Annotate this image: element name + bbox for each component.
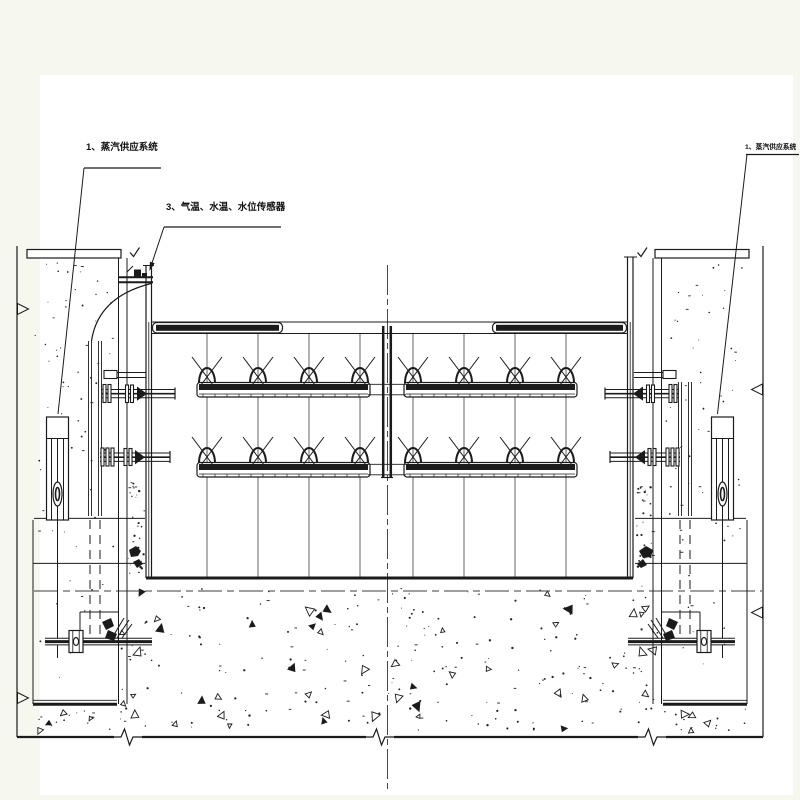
callout-sensors: 3、气温、水温、水位传感器 (166, 201, 286, 213)
valve-indicator (718, 482, 727, 506)
callout-right-steam-system: 1、蒸汽供应系统 (745, 142, 797, 151)
pipe-clamp (104, 371, 117, 379)
engineering-drawing: 1、蒸汽供应系统 3、气温、水温、水位传感器 1、蒸汽供应系统 (0, 0, 800, 800)
spray-pipe (197, 383, 370, 398)
pipe-clamp (663, 371, 676, 379)
anchor-box (697, 631, 711, 653)
left-pier-cap (27, 250, 121, 259)
spray-pipe (404, 383, 577, 398)
spray-pipe (197, 463, 370, 478)
anchor-box (69, 631, 83, 653)
spray-pipe (404, 463, 577, 478)
paper-sheet (40, 75, 793, 795)
valve-indicator (53, 482, 62, 506)
callout-left-steam-system: 1、蒸汽供应系统 (86, 141, 158, 153)
screenshot-root: 1、蒸汽供应系统 3、气温、水温、水位传感器 1、蒸汽供应系统 (0, 0, 800, 800)
